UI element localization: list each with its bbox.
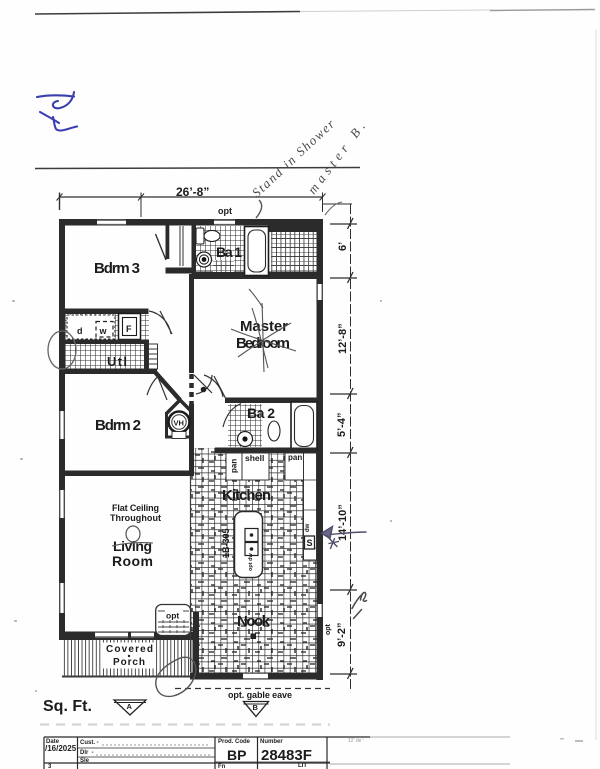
svg-text:dw: dw bbox=[305, 523, 311, 532]
svg-text:Porch: Porch bbox=[113, 657, 145, 668]
svg-text:S: S bbox=[307, 538, 313, 548]
svg-text:12’-8”: 12’-8” bbox=[337, 323, 349, 354]
svg-text:12’ de’:: 12’ de’: bbox=[348, 738, 364, 744]
svg-text:Fn: Fn bbox=[218, 764, 226, 769]
svg-text:opt: opt bbox=[166, 611, 179, 621]
svg-text:26’-8”: 26’-8” bbox=[176, 185, 209, 199]
svg-text:Throughout: Throughout bbox=[110, 513, 161, 523]
svg-text:BP: BP bbox=[227, 747, 246, 763]
svg-text:Prod. Code: Prod. Code bbox=[218, 739, 251, 745]
svg-text:6’: 6’ bbox=[337, 242, 349, 251]
svg-text:Sq. Ft.: Sq. Ft. bbox=[43, 698, 92, 715]
svg-text:Covered: Covered bbox=[106, 644, 153, 655]
svg-text:Flat Ceiling: Flat Ceiling bbox=[112, 503, 159, 513]
svg-text:A: A bbox=[127, 702, 133, 711]
svg-text:14’-10”: 14’-10” bbox=[337, 504, 349, 541]
svg-text:Bdrm 2: Bdrm 2 bbox=[95, 417, 141, 434]
svg-text:Kitchen: Kitchen bbox=[222, 487, 271, 504]
svg-text:Room: Room bbox=[112, 553, 153, 569]
svg-text:1B-305: 1B-305 bbox=[221, 528, 231, 558]
svg-text:Ba 1: Ba 1 bbox=[216, 244, 242, 260]
svg-text:Cust. -: Cust. - bbox=[80, 740, 99, 746]
svg-text:pan: pan bbox=[230, 459, 239, 473]
svg-text:opt: opt bbox=[218, 206, 232, 216]
svg-text:Living: Living bbox=[113, 538, 152, 554]
svg-text:VH: VH bbox=[174, 419, 184, 428]
svg-text:Number: Number bbox=[260, 739, 283, 745]
svg-text:d: d bbox=[77, 326, 83, 336]
svg-text:Nook: Nook bbox=[237, 613, 271, 630]
svg-text:F: F bbox=[126, 324, 132, 334]
svg-text:28483F: 28483F bbox=[261, 747, 312, 764]
svg-text:Dlr -: Dlr - bbox=[80, 750, 94, 756]
svg-text:pan: pan bbox=[288, 453, 302, 462]
svg-text:Utl: Utl bbox=[107, 354, 127, 369]
svg-text:Ba 2: Ba 2 bbox=[247, 405, 275, 421]
svg-text:B: B bbox=[253, 703, 259, 712]
svg-text:opt. gable eave: opt. gable eave bbox=[228, 690, 292, 700]
svg-text:9’-2”: 9’-2” bbox=[336, 623, 348, 647]
svg-text:opt: opt bbox=[325, 623, 332, 635]
svg-text:shell: shell bbox=[245, 453, 264, 463]
svg-text:/16/2025: /16/2025 bbox=[45, 744, 77, 753]
svg-text:opt dw: opt dw bbox=[248, 553, 254, 571]
svg-text:Master: Master bbox=[240, 318, 288, 335]
svg-text:5’-4”: 5’-4” bbox=[336, 413, 348, 437]
svg-text:w: w bbox=[99, 326, 108, 336]
svg-text:Sle: Sle bbox=[80, 758, 90, 764]
svg-text:Bdrm 3: Bdrm 3 bbox=[94, 260, 140, 277]
